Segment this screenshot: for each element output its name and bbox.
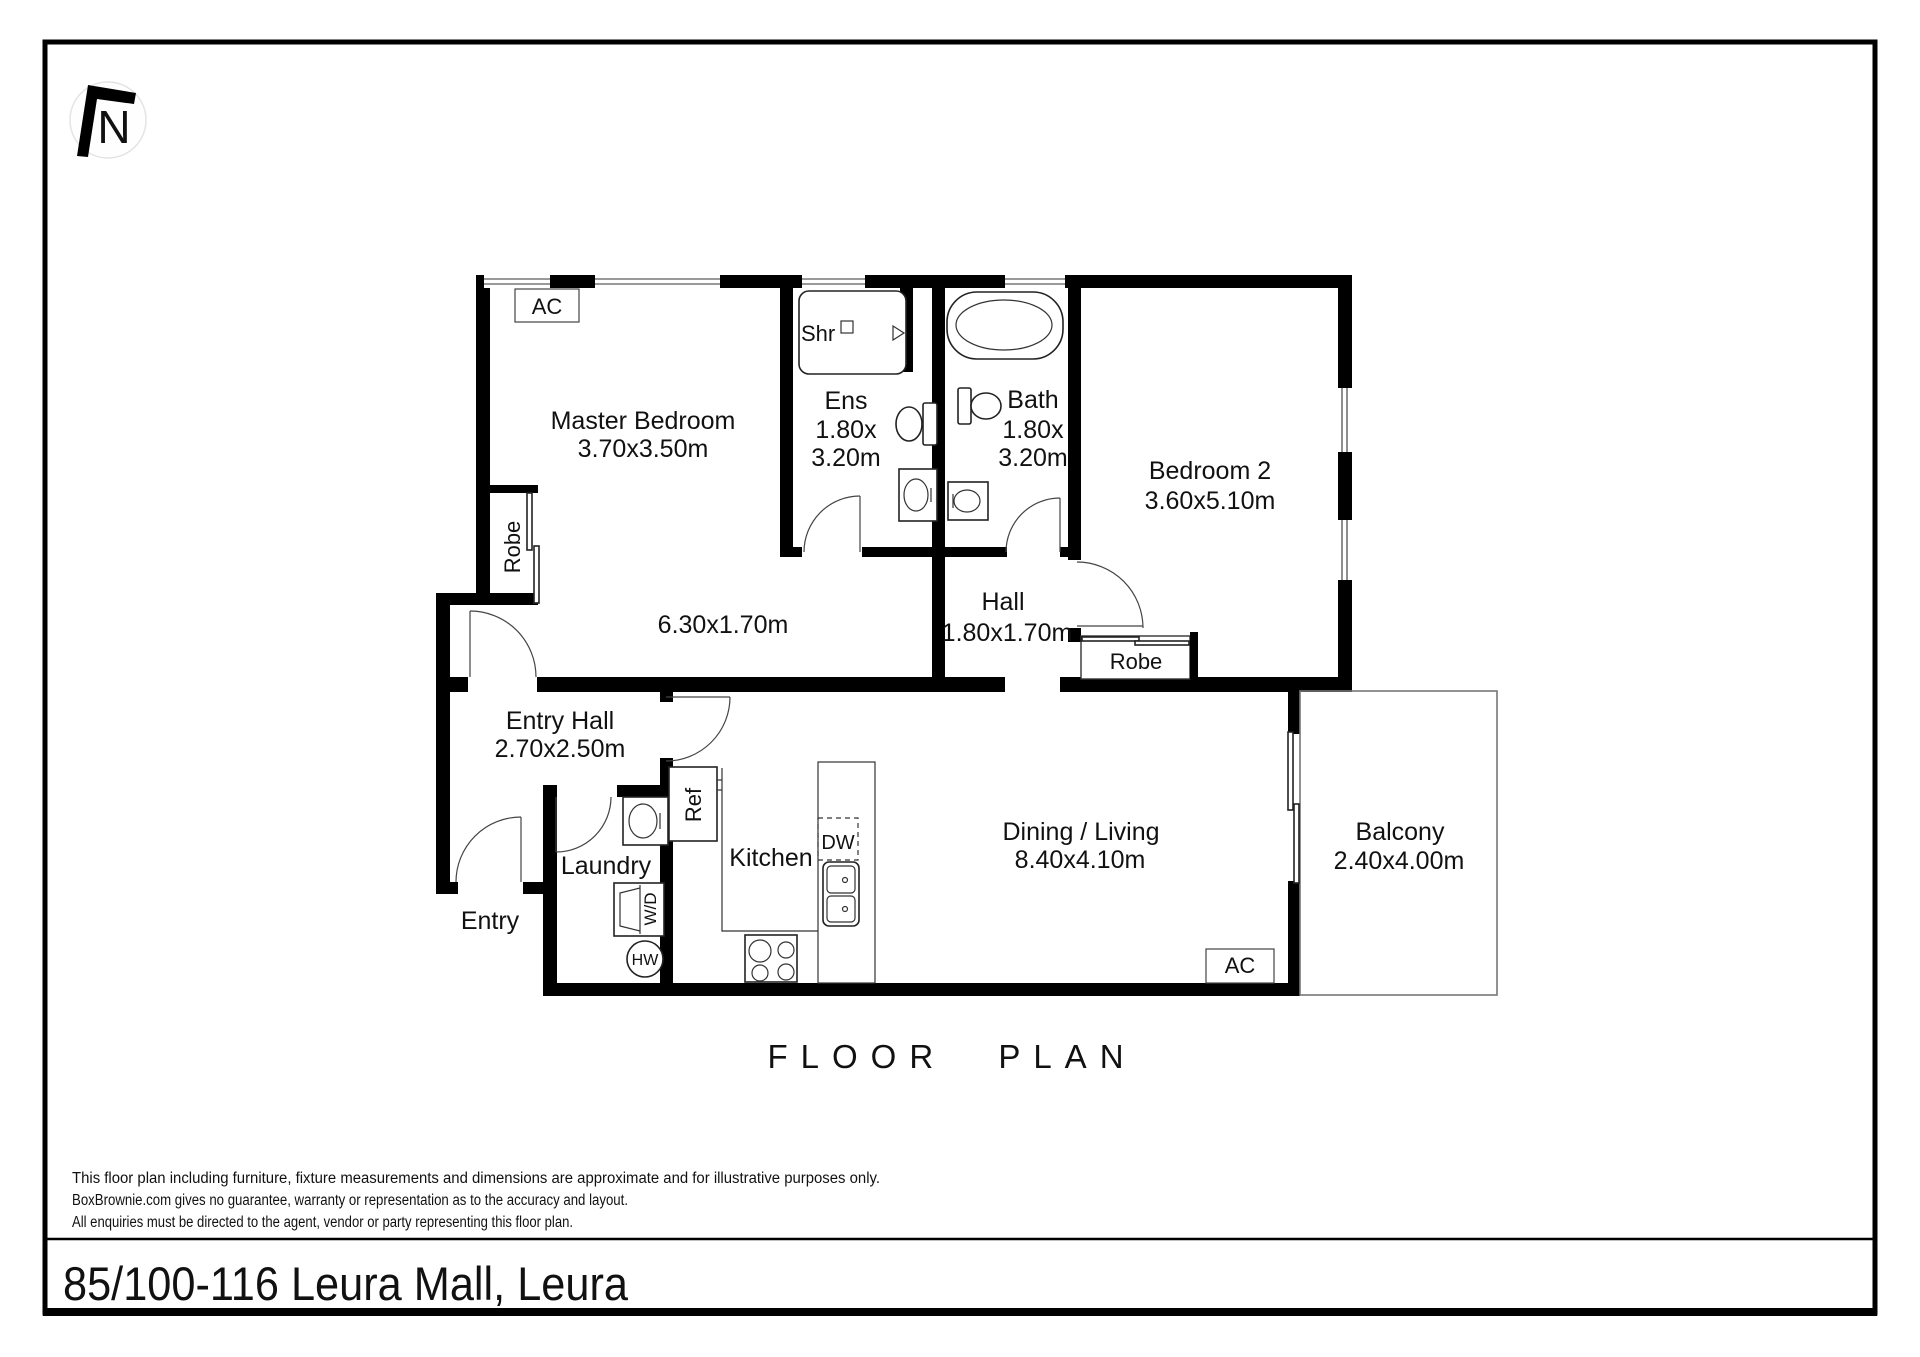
balcony-sliding-door [1288, 732, 1299, 883]
ens-label: Ens [824, 387, 867, 415]
hot-water-label: HW [632, 952, 660, 969]
window-master-top-1 [484, 275, 550, 288]
robe-bedroom2-label: Robe [1110, 649, 1163, 674]
laundry-label: Laundry [561, 852, 652, 880]
north-arrow-icon: N [70, 82, 146, 158]
washer-dryer-label: W/D [641, 892, 660, 925]
kitchen-label: Kitchen [729, 844, 812, 872]
disclaimer-line-3: All enquiries must be directed to the ag… [72, 1214, 573, 1231]
floor-plan-page: N [0, 0, 1920, 1357]
disclaimer: This floor plan including furniture, fix… [72, 1170, 880, 1231]
window-bedroom2-right-2 [1338, 520, 1352, 580]
shower-label: Shr [801, 321, 835, 346]
entry-hall-label: Entry Hall [506, 707, 614, 735]
disclaimer-line-2: BoxBrownie.com gives no guarantee, warra… [72, 1192, 628, 1209]
kitchen-sink [823, 862, 859, 926]
robe-master-label: Robe [500, 521, 525, 574]
ac-bottom-label: AC [1225, 953, 1256, 978]
walls [436, 275, 1352, 996]
window-ens-top [802, 275, 865, 288]
laundry-tub [623, 797, 668, 845]
dishwasher-label: DW [821, 832, 854, 854]
door-bedroom2 [1077, 562, 1143, 628]
bedroom2-label: Bedroom 2 [1149, 457, 1271, 485]
door-bath [1006, 498, 1060, 552]
door-kitchen [666, 697, 730, 761]
window-bedroom2-right-1 [1338, 388, 1352, 452]
address-title: 85/100-116 Leura Mall, Leura [63, 1257, 629, 1310]
entry-hall-dims: 2.70x2.50m [495, 735, 626, 763]
bath-label: Bath [1007, 386, 1058, 414]
master-bedroom-dims: 3.70x3.50m [578, 435, 709, 463]
vanity-bath [948, 482, 988, 520]
stove [745, 935, 797, 982]
toilet-ens [896, 403, 937, 445]
robe-master-sliding-door [527, 493, 539, 603]
fridge-label: Ref [681, 787, 706, 822]
ens-dims2: 3.20m [811, 444, 880, 472]
kitchen-island [818, 762, 875, 983]
entry-label: Entry [461, 907, 520, 935]
bath-dims2: 3.20m [998, 444, 1067, 472]
ac-top-label: AC [532, 294, 563, 319]
bathtub [947, 292, 1063, 359]
ens-dims1: 1.80x [815, 416, 877, 444]
hall-label: Hall [981, 588, 1024, 616]
window-bath-top [1005, 275, 1065, 288]
master-bedroom-label: Master Bedroom [551, 407, 736, 435]
door-ens [804, 496, 860, 552]
bath-dims1: 1.80x [1002, 416, 1064, 444]
north-label: N [97, 101, 130, 153]
floor-plan-title: FLOOR PLAN [767, 1038, 1136, 1075]
vanity-ens [899, 469, 937, 521]
corridor-dims: 6.30x1.70m [658, 611, 789, 639]
bedroom2-dims: 3.60x5.10m [1145, 487, 1276, 515]
dining-living-dims: 8.40x4.10m [1015, 846, 1146, 874]
dining-living-label: Dining / Living [1002, 818, 1159, 846]
door-corridor [470, 611, 536, 677]
window-master-top-2 [595, 275, 720, 288]
disclaimer-line-1: This floor plan including furniture, fix… [72, 1170, 880, 1187]
balcony-label: Balcony [1356, 818, 1445, 846]
balcony-dims: 2.40x4.00m [1334, 847, 1465, 875]
door-entry [456, 817, 521, 882]
hall-dims: 1.80x1.70m [942, 619, 1073, 647]
door-laundry [556, 797, 611, 852]
toilet-bath [958, 388, 1001, 424]
